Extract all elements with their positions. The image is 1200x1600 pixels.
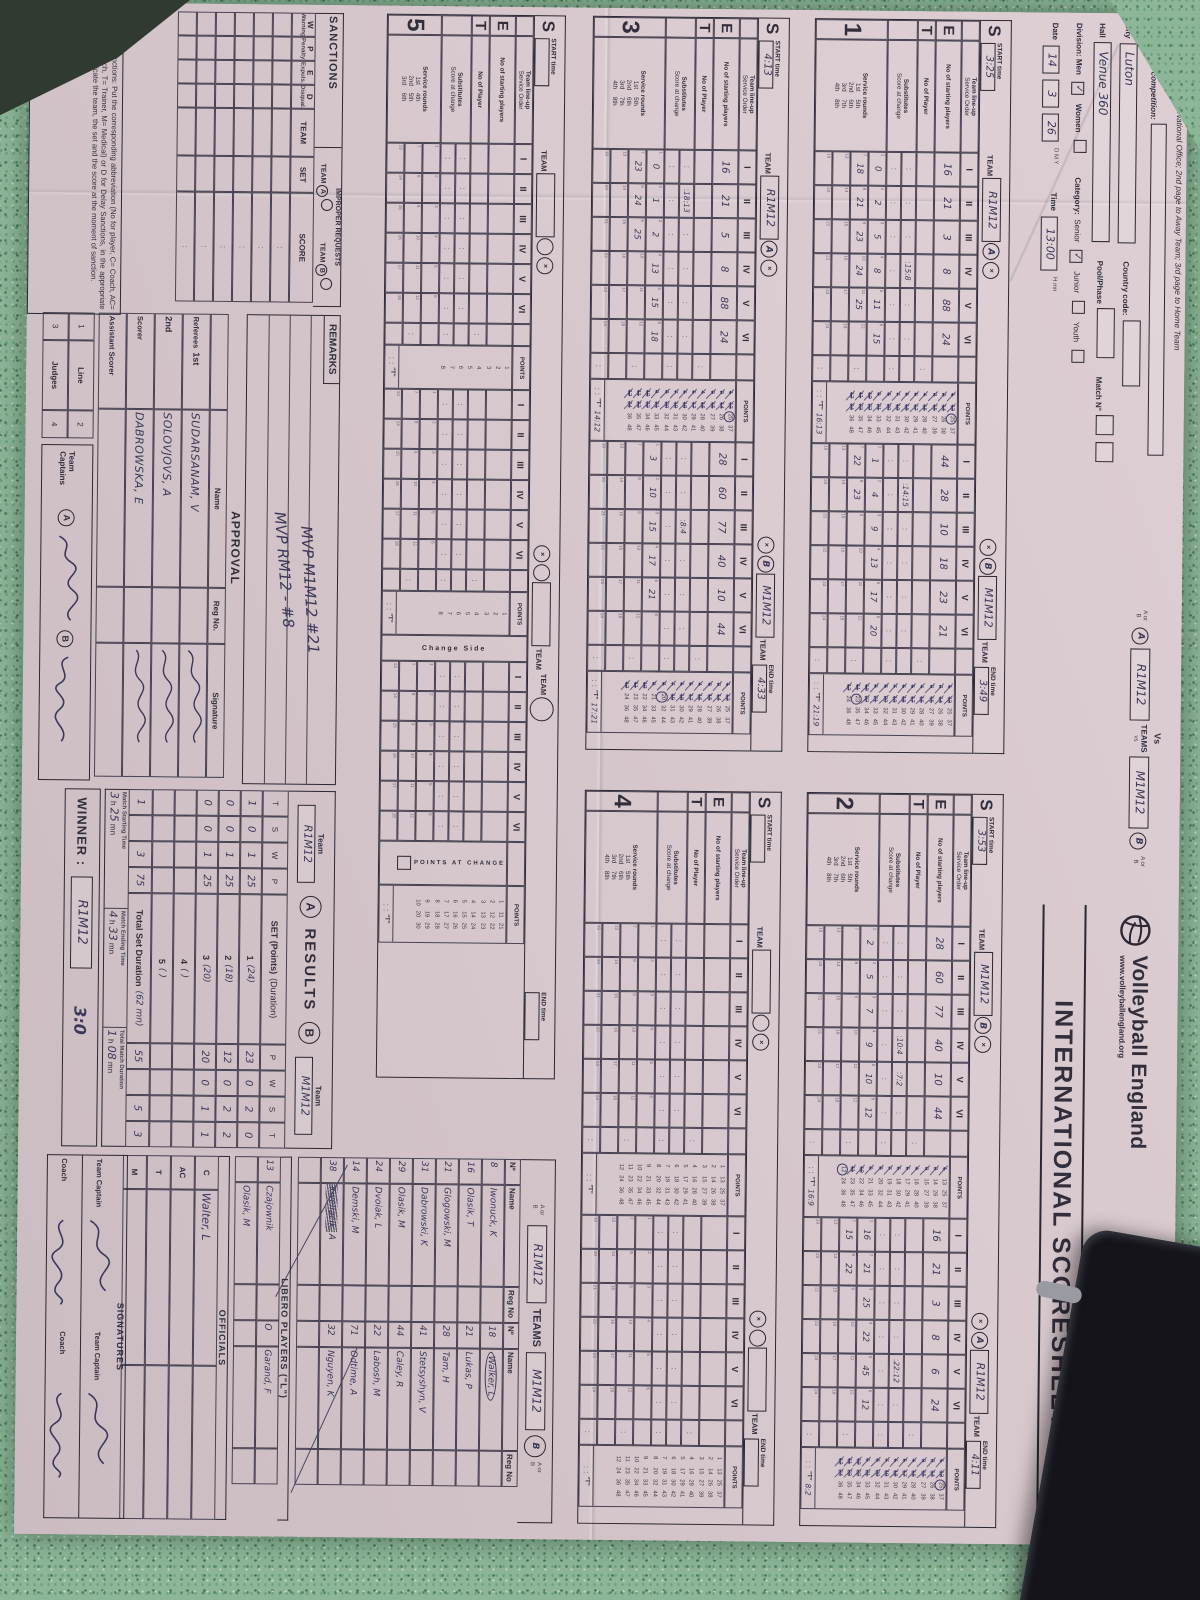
service-round-cell: 612: [858, 1096, 876, 1130]
service-round-cell: 22: [580, 1317, 598, 1351]
signatures-table: Team CaptainTeam CaptainCoachCoach: [43, 1154, 117, 1519]
service-round-cell: 12: [840, 1095, 858, 1129]
roster-cell-roster-a-name: Kwellacik, A: [320, 1183, 344, 1285]
service-round-cell: 7: [625, 441, 643, 475]
starting-player-number: [486, 390, 512, 420]
starting-player-number: [483, 662, 509, 692]
timeout-score: 21:19: [812, 705, 821, 727]
sanction-col-header: TEAM: [291, 109, 316, 157]
service-round-cell: 1024: [849, 253, 867, 287]
service-round-cell: 22: [588, 543, 606, 577]
team-letter-circle: [533, 565, 550, 582]
roster-a-number: 14: [350, 1160, 360, 1172]
service-round-cell: 511: [867, 288, 885, 322]
timeout-label: "T": [389, 367, 395, 376]
service-round-cell: 1125: [849, 287, 867, 321]
roster-b-number: 41: [418, 1325, 428, 1337]
team-letter-circle: A: [971, 1332, 988, 1349]
scoresheet-paper: Distribution: 1st page to National Offic…: [14, 2, 1188, 1546]
roster-aorb-right: A or B: [528, 1462, 542, 1478]
points-column: 1234567891011121314151617181920212223242…: [586, 671, 733, 735]
line-judges-cell: Line: [68, 340, 95, 410]
end-time: END time3:49: [973, 665, 996, 753]
service-round-cell: 17: [382, 509, 400, 539]
service-round-cell: 22: [805, 1027, 823, 1061]
service-round-cell: 17: [380, 781, 398, 811]
roster-cell: [295, 1449, 318, 1485]
service-round-score: 21: [854, 197, 864, 208]
roster-a-name: Iwonuck, K: [488, 1188, 499, 1237]
winner-row: WINNER : R1M12 3:0: [61, 788, 101, 1146]
service-round-cell: 37: [859, 994, 877, 1028]
service-round-cell: 21: [583, 991, 601, 1025]
service-round-score: 25: [853, 299, 863, 310]
roster-cell-roster-a-name: Dvoiak, L: [366, 1183, 390, 1285]
sanction-cell: [235, 12, 254, 36]
date-month: 3: [1042, 80, 1059, 108]
city-row: City Luton Country code:: [1116, 23, 1144, 386]
service-round-cell: 9: [404, 203, 422, 233]
service-round-cell: 22: [868, 186, 886, 220]
set-number: 2: [808, 793, 880, 814]
set-team-header: ×TEAM: [528, 545, 551, 672]
service-round-score: 1: [650, 198, 660, 204]
sanction-cell: [215, 84, 234, 108]
starting-player-number: 16: [934, 152, 960, 186]
sanction-cell: [254, 36, 273, 60]
starting-player-number: 88: [933, 288, 959, 322]
team-lineup-label: Team line-upService Order: [961, 41, 980, 153]
roster-cell-roster-b-number: 44: [388, 1322, 411, 1348]
serve-receive-circle: ×: [971, 1313, 988, 1330]
roster-b-number: 32: [326, 1324, 336, 1336]
approval-reg: [179, 587, 208, 643]
starting-player-number: 88: [711, 286, 737, 320]
service-round-cell: 12: [618, 1093, 636, 1127]
roster-a-name: Demski, M: [350, 1186, 360, 1233]
team-a-box: R1M12: [1130, 648, 1151, 720]
roster-cell-roster-b-name: Tam, H: [433, 1348, 457, 1450]
serve-receive-circle: ×: [749, 1310, 766, 1327]
division-row: Division: Men ✓ Women Category: Senior ✓…: [1068, 23, 1090, 367]
points-column: 1234567891011121314151617181920212223242…: [808, 673, 955, 737]
service-round-score: 25: [632, 229, 642, 240]
roster-b-number: 71: [349, 1324, 359, 1336]
official-name: Walter, L: [193, 1190, 219, 1366]
service-round-score: 15: [647, 521, 657, 532]
service-round-score: 18: [854, 163, 864, 174]
sanction-cell: [273, 36, 292, 60]
starting-player-number: 3: [922, 1286, 948, 1320]
timeout-score: 16:13: [815, 413, 824, 435]
team-lineup-label: Team line-upService Order: [739, 38, 758, 150]
service-round-cell: 823: [847, 477, 865, 511]
roster-a-number: 24: [373, 1161, 383, 1173]
captains-circle-a: A: [58, 509, 75, 526]
aorb-left: A or B: [1134, 607, 1148, 623]
service-round-cell: 20: [803, 1251, 821, 1285]
libero-cell: Olasik, M: [234, 1182, 258, 1284]
service-round-cell: 8: [399, 691, 417, 721]
roster-cell-roster-a-number: 14: [344, 1157, 367, 1183]
set-grid: ET1Team line-upService OrderNo of starti…: [807, 18, 981, 754]
set-number: 3: [594, 17, 666, 38]
approval-role: Assistant Scorer: [98, 313, 127, 409]
starting-player-number: [487, 294, 513, 324]
roster-cell: [434, 1286, 457, 1322]
points-column: 12345678::"T": [381, 591, 509, 636]
end-time: END time4:11: [965, 1439, 988, 1527]
service-round-cell: 615: [866, 322, 884, 356]
starting-player-number: [701, 1216, 727, 1250]
service-round-cell: 21: [580, 1283, 598, 1317]
service-round-cell: 23: [810, 579, 828, 613]
service-round-score: 22: [843, 1263, 853, 1274]
service-round-cell: 15: [380, 721, 398, 751]
service-round-cell: 25: [860, 960, 878, 994]
line-judges-cell: 4: [41, 410, 67, 438]
service-round-score: 3: [647, 456, 657, 462]
teams-roster: A or B R1M12 TEAMS M1M12 B A or B NºName…: [294, 1157, 556, 1524]
category-label: Category:: [1073, 177, 1082, 214]
service-round-cell: 8: [401, 419, 419, 449]
service-round-cell: 210: [643, 475, 661, 509]
country-code-label: Country code:: [1121, 261, 1131, 315]
serve-receive-circle: ×: [533, 546, 550, 563]
service-round-cell: 515: [645, 285, 663, 319]
roster-col-header: Reg No: [502, 1451, 518, 1487]
service-round-cell: 315: [642, 509, 660, 543]
start-time-box: 3:53: [972, 817, 988, 865]
service-round-cell: 6: [641, 611, 659, 645]
service-round-cell: 17: [828, 579, 846, 613]
official-name: [145, 1189, 171, 1365]
service-round-cell: 16: [598, 1317, 616, 1351]
service-round-cell: 10: [624, 543, 642, 577]
service-round-cell: 19: [803, 1217, 821, 1251]
set-team-name-box: M1M12: [977, 576, 997, 640]
service-round-cell: 5: [637, 1059, 655, 1093]
sanction-cell: [197, 36, 216, 60]
roster-b-name: Nguyen, K: [325, 1350, 335, 1396]
service-round-cell: 18: [608, 319, 626, 353]
date-day: 14: [1042, 46, 1059, 74]
roster-b-name: Labosh, M: [371, 1351, 381, 1397]
set-team-header: ×BM1M12TEAM: [974, 538, 997, 665]
results-section: Team R1M12 A RESULTS B Team M1M12 TSWPSE…: [61, 788, 336, 1149]
starting-player-number: 77: [925, 994, 951, 1028]
substitution-score: 22:12: [892, 1361, 901, 1383]
service-round-cell: 23: [802, 1353, 820, 1387]
sanction-cell: [177, 107, 197, 155]
service-round-cell: 6: [421, 293, 439, 323]
approval-signature: [150, 643, 179, 777]
set-team-header: ×BM1M12TEAM: [752, 535, 775, 662]
service-round-cell: 6: [633, 1385, 651, 1419]
points-column: 1234567891011121314151617181920212223242…: [578, 1445, 725, 1509]
service-round-cell: 14: [824, 959, 842, 993]
libero-cell: Czajownik: [257, 1182, 281, 1284]
service-round-cell: 5: [418, 509, 436, 539]
official-role: AC: [171, 1155, 195, 1189]
service-rounds-label: Service rounds1st4th2nd5th3rd6th: [387, 35, 442, 144]
service-round-cell: 16: [823, 1027, 841, 1061]
results-set-cell: SET (Points)(Duration): [260, 894, 288, 1044]
results-row: TSWPSET (Points)(Duration)PWST: [259, 790, 289, 1148]
service-round-score: 9: [863, 1042, 873, 1048]
serve-receive-circle: ×: [760, 260, 777, 277]
set-team-name-box: R1M12: [760, 176, 780, 240]
service-round-cell: 545: [856, 1354, 874, 1388]
roster-cell-roster-b-name: Caley, R: [387, 1348, 411, 1450]
service-round-cell: 12: [623, 611, 641, 645]
service-round-cell: 48: [867, 254, 885, 288]
starting-player-number: [484, 540, 510, 570]
remarks-title: REMARKS: [323, 316, 340, 384]
pool-phase-label: Pool/Phase: [1095, 261, 1104, 304]
service-round-cell: 18: [819, 1387, 837, 1421]
service-round-cell: 24: [812, 321, 830, 355]
starting-player-number: 28: [926, 926, 952, 960]
service-round-score: 2: [650, 232, 660, 238]
starting-player-number: [699, 1386, 725, 1420]
signature: [153, 646, 176, 746]
team-lineup-label: Team line-upService Order: [952, 815, 971, 927]
competition-input: [1147, 124, 1166, 456]
sanction-cell: [254, 60, 273, 84]
service-round-score: 15: [649, 297, 659, 308]
approval-name: SUDARSANAM, V: [180, 409, 210, 587]
roster-a-name: Dvoiak, L: [373, 1187, 383, 1229]
match-end-label: Match Ending Time: [118, 911, 125, 1025]
starting-player-number: [703, 1026, 729, 1060]
service-round-cell: 19: [581, 1215, 599, 1249]
women-checkbox: [1074, 140, 1087, 153]
service-round-score: 12: [862, 1107, 872, 1118]
winner-team: R1M12: [70, 876, 93, 968]
substitution-score: 15:8: [903, 264, 912, 281]
set-team-name-box: [747, 1347, 767, 1411]
starting-player-number: 8: [711, 252, 737, 286]
service-round-cell: 14: [386, 173, 404, 203]
points-column: 12345678::"T": [384, 345, 512, 390]
team-letter-circle: B: [757, 555, 774, 572]
winner-score: 3:0: [71, 1006, 90, 1035]
service-round-cell: 13: [821, 1217, 839, 1251]
starting-player-number: [488, 174, 514, 204]
roster-cell-roster-b-number: [296, 1321, 319, 1347]
signature-role-label: Team Captain: [93, 1329, 103, 1390]
timeout-label: "T": [809, 1177, 815, 1186]
line-judges-cell: Judges: [42, 340, 69, 410]
service-round-cell: 18: [382, 539, 400, 569]
remarks-handwriting-1: MVP M1M12 #21: [297, 525, 323, 654]
officials-table: CWalter, LACTM: [119, 1155, 219, 1520]
line-judges-cell: 1: [69, 312, 95, 340]
hall-label: Hall: [1098, 23, 1107, 38]
starting-player-number: 8: [922, 1320, 948, 1354]
service-round-cell: 2: [635, 1249, 653, 1283]
libero-cell: [256, 1284, 279, 1320]
service-round-cell: 13: [381, 661, 399, 691]
service-round-cell: 24: [804, 1095, 822, 1129]
service-round-cell: 2: [417, 691, 435, 721]
line-judges-cell: 3: [43, 312, 69, 340]
service-round-cell: 15: [831, 219, 849, 253]
line-judges-table: 1Line23Judges4: [41, 312, 94, 439]
team-lineup-label: Team line-upService Order: [515, 36, 534, 144]
service-round-cell: 1: [635, 1215, 653, 1249]
starting-player-number: 60: [709, 476, 735, 510]
signature-role-label: Coach: [58, 1328, 68, 1389]
starting-player-number: [700, 1318, 726, 1352]
starting-player-number: 40: [708, 544, 734, 578]
roster-b-name: Tam, H: [440, 1351, 450, 1382]
results-set-cell: 3(20): [194, 894, 218, 1044]
roster-a-number: 31: [419, 1161, 429, 1173]
brand-name: Volleyball England: [1126, 955, 1152, 1149]
start-time-box: 4:13: [758, 41, 774, 89]
service-round-cell: 13: [643, 441, 661, 475]
roster-cell-roster-b-name: [295, 1347, 319, 1449]
roster-a-number: 38: [327, 1160, 337, 1172]
team-letter-circle: B: [974, 1017, 991, 1034]
set-team-header: TEAMR1M12A×: [756, 150, 779, 277]
remarks-handwriting-2: MVP RM12 - #8: [271, 511, 298, 629]
service-round-cell: 21: [588, 509, 606, 543]
service-round-cell: 7: [404, 143, 422, 173]
roster-table: NºNameReg NoNºNameReg No8Iwonuck, K18Wal…: [294, 1157, 521, 1523]
service-round-cell: 10: [841, 1027, 859, 1061]
service-round-cell: 9: [401, 449, 419, 479]
service-round-cell: 18: [600, 1093, 618, 1127]
roster-cell-roster-b-number: 28: [434, 1322, 457, 1348]
results-set-cell: 1(24): [238, 894, 262, 1044]
roster-b-name: Lukas, P: [463, 1351, 473, 1388]
service-round-cell: 49: [859, 1028, 877, 1062]
results-row: 1375Total Set Duration(62 mn)5553: [125, 789, 153, 1147]
service-round-cell: 11: [616, 1351, 634, 1385]
roster-cell-roster-b-number: 32: [319, 1321, 342, 1347]
service-round-cell: 10: [868, 152, 886, 186]
service-round-cell: 17: [609, 285, 627, 319]
service-round-cell: 18: [597, 1385, 615, 1419]
service-round-score: 16: [861, 1229, 871, 1240]
sanction-cell: [272, 84, 291, 108]
points-column: 1234567891011121314151617181920212223242…: [803, 1155, 950, 1219]
roster-cell-roster-a-number: 16: [459, 1158, 482, 1184]
service-round-score: 5: [864, 974, 874, 980]
approval-reg: [95, 587, 124, 643]
roster-a-number: 8: [488, 1162, 498, 1168]
service-round-cell: 11: [846, 579, 864, 613]
match-start-label: Match Starting Time: [120, 792, 127, 906]
sanction-cell: [196, 84, 215, 108]
service-round-cell: 618: [644, 319, 662, 353]
service-round-cell: 7: [620, 923, 638, 957]
date-label: Date: [1051, 23, 1060, 40]
libero-cell: [232, 1448, 255, 1484]
starting-player-number: [703, 992, 729, 1026]
starting-player-number: [485, 420, 511, 450]
end-time: END time: [524, 990, 547, 1078]
starting-player-number: [488, 204, 514, 234]
sanction-cell: [178, 11, 197, 35]
end-time-box: [524, 992, 540, 1040]
match-duration-label: Total Match Duration: [117, 1030, 124, 1144]
service-round-cell: 15: [386, 203, 404, 233]
service-round-cell: 22: [802, 1319, 820, 1353]
team-letter-circle: B: [979, 558, 996, 575]
service-round-cell: 21: [591, 217, 609, 251]
country-code-input: [1122, 320, 1141, 386]
service-round-score: 12: [859, 1399, 869, 1410]
service-round-cell: 923: [849, 219, 867, 253]
service-round-cell: 925: [627, 217, 645, 251]
sanction-cell: [235, 36, 254, 60]
starting-player-number: [483, 692, 509, 722]
official-extra: [143, 1365, 169, 1519]
service-round-score: 13: [649, 263, 659, 274]
sanction-cell: [253, 84, 272, 108]
service-round-cell: 21: [802, 1285, 820, 1319]
men-checkbox: ✓: [1071, 82, 1084, 95]
approval-col-header: Signature: [206, 644, 225, 778]
service-round-cell: 20: [806, 959, 824, 993]
service-round-cell: 718: [850, 151, 868, 185]
service-round-cell: 19: [592, 149, 610, 183]
service-round-score: 0: [872, 166, 882, 172]
sanction-cell: [234, 108, 254, 156]
service-round-score: 0: [650, 164, 660, 170]
signature-row: Team CaptainTeam Captain: [78, 1154, 117, 1518]
service-round-cell: 13: [602, 923, 620, 957]
service-round-score: 13: [868, 557, 878, 568]
starting-player-number: [485, 450, 511, 480]
approval-role: Scorer: [126, 313, 155, 409]
service-round-cell: 15: [598, 1283, 616, 1317]
substitution-score: 14:15: [901, 485, 910, 507]
roster-cell: [319, 1285, 342, 1321]
service-round-cell: 17: [823, 1061, 841, 1095]
sanction-cell: [253, 108, 273, 156]
official-role: T: [147, 1155, 171, 1189]
service-round-cell: 14: [610, 183, 628, 217]
service-round-cell: 24: [587, 611, 605, 645]
roster-cell-roster-b-name: Walker, L: [479, 1349, 503, 1451]
service-round-score: 1: [869, 458, 879, 464]
dmy-note: D M Y: [1052, 148, 1058, 165]
roster-cell-roster-a-number: 31: [413, 1158, 436, 1184]
service-round-cell: 12: [403, 293, 421, 323]
sanction-cell: [273, 12, 292, 36]
service-round-cell: 15: [383, 449, 401, 479]
libero-cell: [233, 1284, 256, 1320]
sanction-cell: :: [232, 192, 252, 302]
service-round-cell: 15: [823, 993, 841, 1027]
sanction-col-header: P(Penalty): [292, 37, 316, 61]
points-column: 1234567891011121314151617181920212223242…: [800, 1447, 947, 1511]
official-name: [169, 1189, 195, 1365]
service-round-cell: 35: [867, 220, 885, 254]
date-time-row: Date 14 3 26 D M Y Time 13:00 H mn: [1040, 22, 1060, 291]
points-at-change-label: POINTS AT CHANGE: [414, 860, 505, 867]
set-number: 5: [388, 15, 442, 36]
approval-col-header: [210, 314, 229, 410]
service-round-cell: 9: [838, 1285, 856, 1319]
starting-player-number: 10: [930, 512, 956, 546]
service-round-cell: 10: [403, 233, 421, 263]
